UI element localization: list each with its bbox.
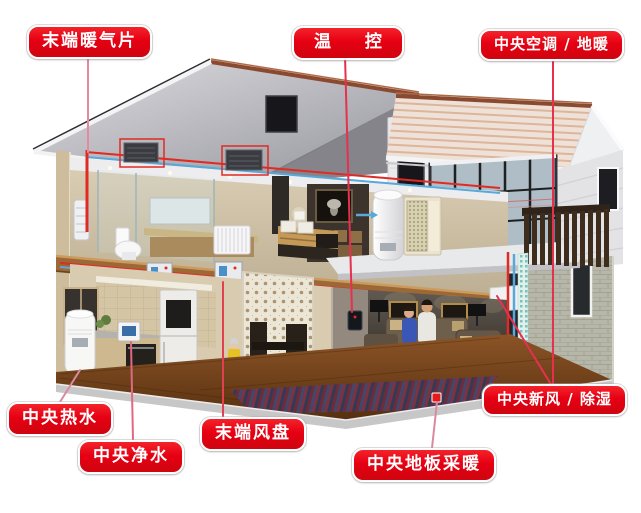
- label-central-ac-floor-heating: 中央空调 / 地暖: [479, 29, 624, 61]
- heat-pump-unit: [404, 197, 441, 255]
- hot-water-tank: [65, 310, 95, 374]
- label-central-hot-water: 中央热水: [7, 402, 113, 436]
- label-terminal-fan-coil-text: 末端风盘: [215, 423, 291, 443]
- label-central-fresh-air-dehumidification: 中央新风 / 除湿: [482, 384, 627, 416]
- label-central-floor-heating-text: 中央地板采暖: [367, 454, 481, 474]
- bathroom-mirror: [150, 198, 210, 224]
- label-central-hot-water-text: 中央热水: [22, 408, 98, 428]
- label-central-water-purification: 中央净水: [78, 440, 184, 474]
- water-purifier: [118, 322, 140, 341]
- house-illustration: [0, 0, 641, 513]
- floor-heating-sensor: [432, 393, 441, 402]
- label-thermostat-text: 温 控: [314, 32, 396, 52]
- label-central-fresh-air-dehumidification-text: 中央新风 / 除湿: [497, 390, 612, 408]
- label-terminal-fan-coil: 末端风盘: [200, 417, 306, 451]
- label-thermostat: 温 控: [292, 26, 404, 60]
- label-central-floor-heating: 中央地板采暖: [352, 448, 496, 482]
- bedside-lamp: [292, 207, 306, 221]
- side-window-upper: [598, 168, 618, 210]
- thermostat: [348, 311, 362, 330]
- label-terminal-radiator: 末端暖气片: [27, 25, 152, 59]
- label-terminal-radiator-text: 末端暖气片: [42, 31, 137, 51]
- attic-window: [266, 96, 297, 132]
- radiator: [214, 226, 250, 254]
- balcony-railing: [522, 204, 610, 267]
- label-central-ac-floor-heating-text: 中央空调 / 地暖: [494, 35, 609, 53]
- side-window-lower: [572, 264, 591, 316]
- label-central-water-purification-text: 中央净水: [93, 446, 169, 466]
- annotated-house-diagram: 末端暖气片 温 控 中央空调 / 地暖 中央热水 中央净水 末端风盘 中央地板采…: [0, 0, 641, 513]
